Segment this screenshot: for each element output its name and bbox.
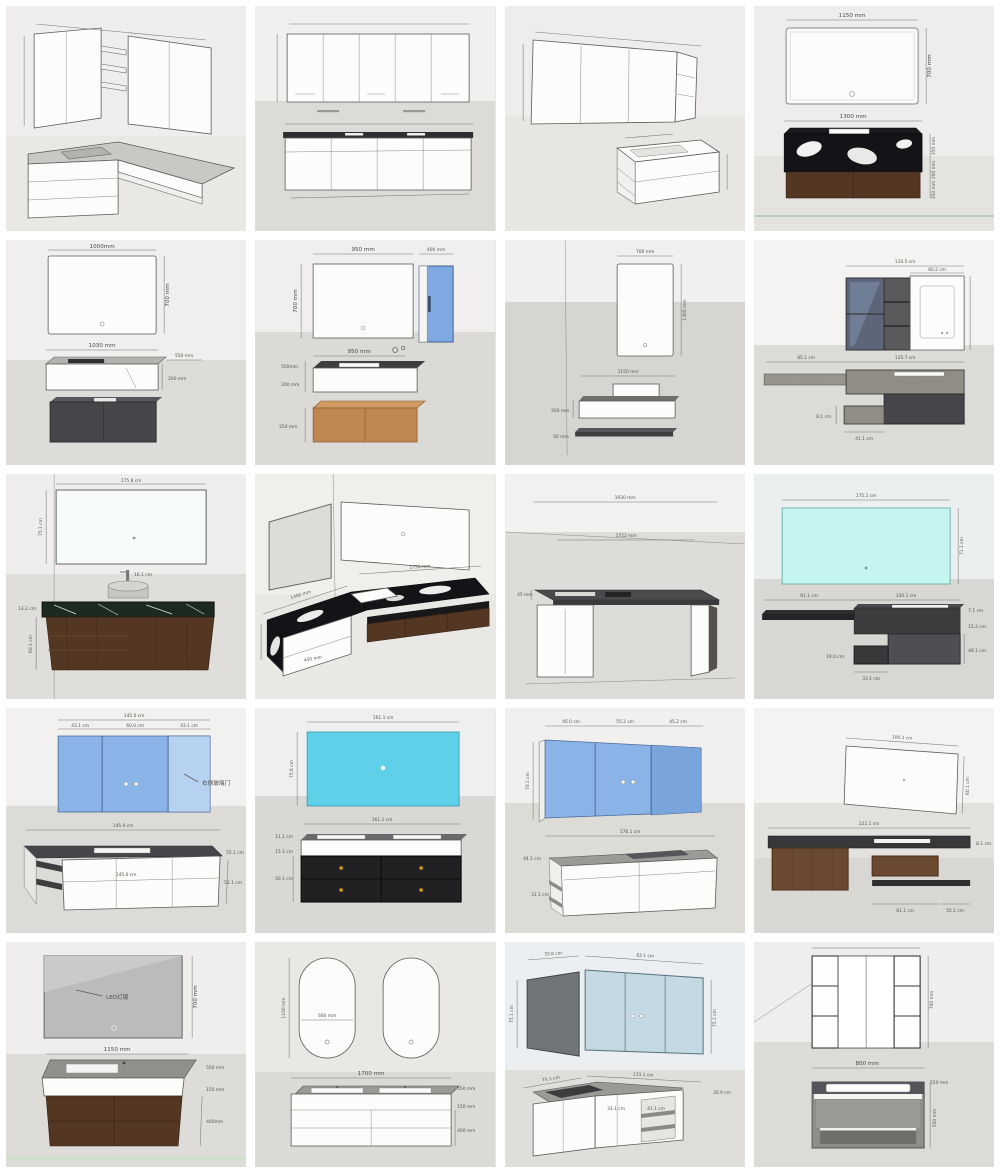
marble-drawer-box xyxy=(844,406,884,424)
charcoal-top xyxy=(768,836,970,848)
dim-label: 44.1 cm xyxy=(523,856,541,862)
drawing-blue-mirror-cabinet-shelf-vanity: 45.0 cm 55.2 cm 45.2 cm 70.1 cm 176.1 cm… xyxy=(505,708,745,933)
basin-front xyxy=(46,364,158,390)
dim-label: 1150 mm xyxy=(617,369,638,375)
isometric-sketch xyxy=(505,6,745,231)
mirror-cabinet xyxy=(585,970,703,1054)
blue-mirror-sketch: 145.0 cm 43.1 cm 60.0 cm 43.1 cm 右侧玻璃门 1… xyxy=(6,708,246,933)
green-marble-sketch: 175.8 cm 75.1 cm 16.1 cm 13.2 cm 60. xyxy=(6,474,246,699)
right-shelf-column xyxy=(894,956,920,1048)
dim-label: 200 mm xyxy=(281,382,299,388)
dim-label: 33.1 cm xyxy=(862,676,880,682)
dim-label: 1000mm xyxy=(90,244,115,250)
drawing-wide-mirror-green-marble-vanity: 175.8 cm 75.1 cm 16.1 cm 13.2 cm 60. xyxy=(6,474,246,699)
sink-slot xyxy=(829,129,869,134)
dim-label: 75.1 cm xyxy=(712,1009,718,1027)
under-cabinet xyxy=(884,394,964,424)
dim-label: 400 mm xyxy=(427,247,445,253)
dim-label: 26.9 cm xyxy=(713,1090,731,1096)
walnut-cabinet xyxy=(46,617,214,670)
basin-sketch: 1000mm 700 mm 1030 mm 550 mm 200 mm xyxy=(6,240,246,465)
dim-label: 1300 mm xyxy=(682,299,688,320)
drawing-console-desk-vanity: 1930 mm 1722 mm 45 mm xyxy=(505,474,745,699)
marble-vanity-sketch: 1150 mm 700 mm 1300 mm 350 mm 200 mm 350… xyxy=(754,6,994,231)
dim-label: 550 mm xyxy=(457,1086,475,1092)
oval-mirror-right xyxy=(383,958,439,1058)
dim-label: 16.1 cm xyxy=(134,572,152,578)
dim-label: 700 mm xyxy=(929,991,935,1009)
drawing-corner-mirror-cabinet-l-vanity: 33.8 cm 83.1 cm 75.1 cm 75.1 cm 75.1 cm … xyxy=(505,942,745,1167)
dim-label: 60.1 cm xyxy=(28,635,34,653)
dim-label: 200 mm xyxy=(551,408,569,414)
dim-label: 550mm xyxy=(281,364,298,370)
dim-label: 60.2 cm xyxy=(928,267,946,273)
dim-label: 950 mm xyxy=(348,349,371,355)
dim-label: 33.1 cm xyxy=(607,1106,625,1112)
dim-label: 150 mm xyxy=(206,1087,224,1093)
drawing-dark-glass-cabinet-marble-shelf: 110.5 cm 60.2 cm 85.1 cm 125.7 cm xyxy=(754,240,994,465)
vessel-sink xyxy=(108,581,148,591)
corner-cabinet-sketch: 33.8 cm 83.1 cm 75.1 cm 75.1 cm 75.1 cm … xyxy=(505,942,745,1167)
dim-label: 222.1 cm xyxy=(859,821,880,827)
dim-label: 110.5 cm xyxy=(895,259,916,265)
dim-label: 50 mm xyxy=(553,434,569,440)
drawing-mirror-basin-grey-cabinet: 1000mm 700 mm 1030 mm 550 mm 200 mm xyxy=(6,240,246,465)
dim-label: 1100 mm xyxy=(281,997,287,1018)
tall-mirror-sketch: 700 mm 1300 mm 1150 mm 200 mm 50 mm xyxy=(505,240,745,465)
dim-label: 550 mm xyxy=(932,1109,938,1127)
dim-label: 7.1 cm xyxy=(968,608,983,614)
dim-label: 133.1 cm xyxy=(632,1071,653,1078)
drawing-mirror-blue-side-cabinet: 950 mm 400 mm 700 mm 950 mm 550mm 200 mm… xyxy=(255,240,495,465)
vanity-drawer xyxy=(579,401,675,418)
dim-label: 85.1 cm xyxy=(797,355,815,361)
grey-vanity-sketch: 700 mm 800 mm 550 mm 550 mm xyxy=(754,942,994,1167)
dim-label: 1722 mm xyxy=(615,533,636,539)
annotation-label: LED灯镜 xyxy=(106,993,129,1001)
sink xyxy=(826,1084,910,1092)
lower-shelf xyxy=(575,432,673,437)
dim-label: 75.6 cm xyxy=(289,760,295,778)
dim-label: 15.1 cm xyxy=(275,849,293,855)
drawing-corner-vanity-wall-cabinets xyxy=(6,6,246,231)
dim-label: 125.7 cm xyxy=(895,355,916,361)
vanity-doors xyxy=(285,138,471,190)
open-shelf-column xyxy=(884,278,910,350)
dim-label: 81.1 cm xyxy=(896,908,914,914)
main-mirror xyxy=(341,502,469,570)
dim-label: 55.1 cm xyxy=(946,908,964,914)
led-mirror xyxy=(786,28,918,104)
dim-label: 61.1 cm xyxy=(800,593,818,599)
dim-label: 175.1 cm xyxy=(856,493,877,499)
dim-label: 700 mm xyxy=(165,283,171,306)
side-mirror-panel xyxy=(527,972,579,1056)
dim-label: 550 mm xyxy=(930,1080,948,1086)
blue-cabinet-shelf-sketch: 45.0 cm 55.2 cm 45.2 cm 70.1 cm 176.1 cm… xyxy=(505,708,745,933)
dim-label: 41.1 cm xyxy=(855,436,873,442)
dim-label: 83.1 cm xyxy=(636,953,654,960)
drawing-iso-mirror-cabinet-floating-vanity xyxy=(505,6,745,231)
drawing-cyan-mirror-charcoal-vanity: 175.1 cm 71.1 cm 61.1 cm 120.1 cm 7.1 cm… xyxy=(754,474,994,699)
dim-label: 55.1 cm xyxy=(226,850,244,856)
dim-label: 400 mm xyxy=(457,1128,475,1134)
dim-label: 176.1 cm xyxy=(619,829,640,835)
corner-vanity-sketch xyxy=(6,6,246,231)
dim-label: 33.8 cm xyxy=(543,951,561,958)
annotation-label: 右侧玻璃门 xyxy=(202,779,230,787)
open-niche xyxy=(641,1096,675,1142)
dim-label: 13.2 cm xyxy=(18,606,36,612)
dim-label: 1930 mm xyxy=(614,495,635,501)
right-panel xyxy=(691,605,709,676)
dim-label: 1300 mm xyxy=(839,114,866,120)
dim-label: 145.0 cm xyxy=(116,872,137,878)
dim-label: 48.1 cm xyxy=(968,648,986,654)
dim-label: 700 mm xyxy=(635,249,653,255)
dim-label: 60.1 cm xyxy=(965,777,971,795)
black-vanity-sketch: 161.1 cm 75.6 cm 161.1 cm 11.1 cm 15.1 c… xyxy=(255,708,495,933)
drawing-double-oval-mirror-vanity: 1100 mm 600 mm 1700 mm 550 mm 150 mm 400… xyxy=(255,942,495,1167)
dim-label: 50.1 cm xyxy=(275,876,293,882)
marble-corner-sketch: 1750 mm 1400 mm 450 mm xyxy=(255,474,495,699)
dim-label: 161.1 cm xyxy=(373,715,394,721)
dim-label: 55.2 cm xyxy=(616,719,634,725)
cyan-mirror xyxy=(782,508,950,584)
charcoal-vanity-sketch: 175.1 cm 71.1 cm 61.1 cm 120.1 cm 7.1 cm… xyxy=(754,474,994,699)
sink xyxy=(66,1064,118,1073)
counter-top xyxy=(42,1060,196,1078)
dim-label: 200 mm xyxy=(168,376,186,382)
dim-label: 950 mm xyxy=(352,247,375,253)
drawing-wide-mirror-cabinet-four-door-vanity xyxy=(255,6,495,231)
lower-shelf xyxy=(872,880,970,886)
dim-label: 200 mm xyxy=(931,161,937,179)
right-wall-cabinet xyxy=(128,36,211,134)
main-block xyxy=(854,608,960,634)
dim-label: 43.1 cm xyxy=(180,723,198,729)
console-sketch: 1930 mm 1722 mm 45 mm xyxy=(505,474,745,699)
wood-drawer-center xyxy=(872,856,938,876)
drawing-tall-mirror-shelf-vanity: 700 mm 1300 mm 1150 mm 200 mm 50 mm xyxy=(505,240,745,465)
side-shelves xyxy=(675,52,697,122)
dim-label: 700 mm xyxy=(927,54,933,77)
oval-mirror-sketch: 1100 mm 600 mm 1700 mm 550 mm 150 mm 400… xyxy=(255,942,495,1167)
dim-label: 45 mm xyxy=(517,592,533,598)
mirror xyxy=(844,746,958,814)
dim-label: 75.1 cm xyxy=(38,518,44,536)
dim-label: 19.0 cm xyxy=(826,654,844,660)
dim-label: 175.8 cm xyxy=(121,478,142,484)
dim-label: 1700 mm xyxy=(358,1071,385,1077)
dim-label: 550 mm xyxy=(175,353,193,359)
wood-box-left xyxy=(772,848,848,890)
dim-label: 550 mm xyxy=(206,1065,224,1071)
lower-body xyxy=(888,634,960,664)
dim-label: 60.0 cm xyxy=(126,723,144,729)
dim-label: 250 mm xyxy=(279,424,297,430)
dim-label: 41.1 cm xyxy=(647,1106,665,1112)
drawing-l-shaped-marble-corner-vanity: 1750 mm 1400 mm 450 mm xyxy=(255,474,495,699)
elevation-sketch xyxy=(255,6,495,231)
dim-label: 8.1 cm xyxy=(816,414,831,420)
left-shelf xyxy=(762,614,854,620)
dim-label: 71.1 cm xyxy=(959,537,965,555)
grey-mirror-sketch: LED灯镜 700 mm 1150 mm 550 mm 150 mm 400mm xyxy=(6,942,246,1167)
dim-label: 700 mm xyxy=(193,985,199,1008)
dim-label: 600 mm xyxy=(318,1013,336,1019)
dim-label: 800 mm xyxy=(855,1061,878,1067)
white-band xyxy=(42,1078,184,1096)
floating-vanity-sketch: 100.1 cm 60.1 cm 222.1 cm 8.1 cm 81.1 cm… xyxy=(754,708,994,933)
dim-label: 120.1 cm xyxy=(896,593,917,599)
left-shelf-column xyxy=(812,956,838,1048)
dim-label: 350 mm xyxy=(931,181,937,199)
dim-label: 161.1 cm xyxy=(372,817,393,823)
dim-label: 11.1 cm xyxy=(275,834,293,840)
dim-label: 8.1 cm xyxy=(976,841,991,847)
blue-cabinet-sketch: 950 mm 400 mm 700 mm 950 mm 550mm 200 mm… xyxy=(255,240,495,465)
vanity-front xyxy=(62,856,220,910)
drawing-blue-triple-mirror-cabinet-vanity: 145.0 cm 43.1 cm 60.0 cm 43.1 cm 右侧玻璃门 1… xyxy=(6,708,246,933)
vanity-catalog-grid: 1150 mm 700 mm 1300 mm 350 mm 200 mm 350… xyxy=(0,0,1000,1173)
dim-label: 15.2 cm xyxy=(968,624,986,630)
oval-mirror-left xyxy=(299,958,355,1058)
glass-cabinet-sketch: 110.5 cm 60.2 cm 85.1 cm 125.7 cm xyxy=(754,240,994,465)
mirror-wall-cabinet xyxy=(287,34,469,102)
drawing-grey-mirror-wood-drawer-vanity: LED灯镜 700 mm 1150 mm 550 mm 150 mm 400mm xyxy=(6,942,246,1167)
green-marble-top xyxy=(42,602,214,617)
led-mirror xyxy=(617,264,673,356)
small-box xyxy=(854,646,888,664)
mirror-door xyxy=(910,276,964,350)
dim-label: 145.0 cm xyxy=(113,823,134,829)
dim-label: 700 mm xyxy=(293,289,299,312)
dim-label: 1150 mm xyxy=(104,1047,131,1053)
vanity-countertop xyxy=(283,132,473,138)
dim-label: 1030 mm xyxy=(89,343,116,349)
drawing-cyan-mirror-black-drawer-vanity: 161.1 cm 75.6 cm 161.1 cm 11.1 cm 15.1 c… xyxy=(255,708,495,933)
left-front xyxy=(533,1096,595,1156)
led-mirror xyxy=(56,490,206,564)
led-mirror xyxy=(313,264,413,338)
drawing-mirror-marble-vanity: 1150 mm 700 mm 1300 mm 350 mm 200 mm 350… xyxy=(754,6,994,231)
open-shelf xyxy=(820,1130,916,1144)
drawing-mirror-long-floating-vanity: 100.1 cm 60.1 cm 222.1 cm 8.1 cm 81.1 cm… xyxy=(754,708,994,933)
dim-label: 145.0 cm xyxy=(124,713,145,719)
dim-label: 350 mm xyxy=(931,137,937,155)
dim-label: 400mm xyxy=(206,1119,223,1125)
glass-door xyxy=(168,736,210,812)
dim-label: 1150 mm xyxy=(838,13,865,19)
dim-label: 43.1 cm xyxy=(71,723,89,729)
white-band xyxy=(301,840,461,856)
base-cabinet-front xyxy=(28,160,118,218)
dim-label: 45.0 cm xyxy=(562,719,580,725)
left-wall-cabinet xyxy=(34,28,101,128)
door-panel xyxy=(816,1100,920,1128)
dim-label: 75.1 cm xyxy=(509,1005,515,1023)
basin-front xyxy=(313,368,417,392)
dim-label: 150 mm xyxy=(457,1104,475,1110)
dim-label: 45.2 cm xyxy=(669,719,687,725)
mirror-cabinet xyxy=(531,40,677,124)
dim-label: 70.1 cm xyxy=(525,772,531,790)
dim-label: 31.1 cm xyxy=(531,892,549,898)
drawing-mirror-cabinet-grey-vanity: 700 mm 800 mm 550 mm 550 mm xyxy=(754,942,994,1167)
